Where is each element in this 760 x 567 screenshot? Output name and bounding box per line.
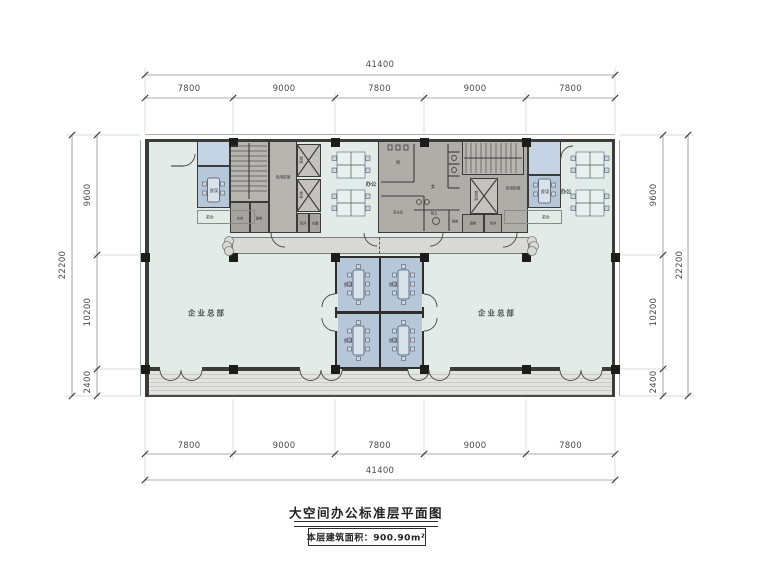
dim-right-total: 22200 [675, 251, 685, 280]
room-label-wc-men: 男 [396, 159, 400, 165]
dim-left-seg: 10200 [83, 298, 93, 327]
dim-top-seg: 7800 [559, 84, 582, 94]
dim-top-seg: 7800 [178, 84, 201, 94]
dim-bottom-seg: 7800 [178, 441, 201, 451]
room-label-elevator: 客梯 [298, 191, 303, 198]
dim-right-seg: 9600 [649, 184, 659, 207]
room-label-elevator: 客梯 [298, 156, 303, 163]
room-label-wc-accessible: 残卫 [431, 211, 438, 216]
zone-label-office-right: 办公 [561, 187, 572, 195]
dim-top-total: 41400 [366, 60, 395, 70]
stair-treads-right [464, 143, 522, 173]
room-label-lobby: 合用前室 [506, 185, 521, 191]
elevator-x-icon [298, 145, 497, 213]
dim-top-seg: 9000 [273, 84, 296, 94]
title-underline-double [294, 521, 438, 527]
floor-plan-sheet: 41400 7800 9000 7800 9000 7800 7800 9000… [0, 0, 760, 567]
room-label-reception: 前台 [206, 214, 213, 220]
dim-right-seg: 2400 [649, 371, 659, 394]
room-label-power: 强电 [452, 219, 459, 224]
toilet-partitions [381, 144, 460, 231]
zone-label-office-left: 办公 [366, 180, 377, 188]
room-label-power: 强电 [256, 216, 263, 221]
room-label-meeting: 会议 [209, 187, 218, 193]
room-label-meeting: 会议 [389, 281, 398, 287]
room-label-meeting: 会议 [540, 188, 549, 194]
dim-bottom-seg: 7800 [368, 441, 391, 451]
dimension-lines [72, 75, 688, 480]
room-label-lobby: 合用前室 [275, 174, 290, 180]
room-label-air-shaft: 风井 [490, 221, 497, 226]
dim-right-seg: 10200 [649, 298, 659, 327]
conference-table-icons [203, 178, 556, 361]
room-label-low-voltage: 弱电 [470, 221, 477, 226]
room-label-fire-elevator: 消防梯 [473, 191, 478, 202]
drawing-title: 大空间办公标准层平面图 [289, 503, 443, 522]
room-label-meeting: 会议 [344, 337, 353, 343]
dim-left-seg: 9600 [83, 184, 93, 207]
dimension-ticks [69, 72, 691, 483]
room-label-pantry: 茶水间 [393, 210, 403, 215]
room-label-wc-women: 女 [431, 183, 435, 189]
room-label-meeting: 会议 [389, 337, 398, 343]
dim-top-seg: 9000 [464, 84, 487, 94]
balcony-door-icons [160, 370, 602, 381]
canopy-scallops [223, 237, 539, 256]
stair-treads-left [231, 143, 267, 199]
room-label-water-shaft: 水井 [236, 216, 243, 221]
zone-label-hq-right: 企业总部 [478, 308, 516, 319]
dim-bottom-total: 41400 [366, 466, 395, 476]
dim-top-seg: 7800 [368, 84, 391, 94]
zone-label-hq-left: 企业总部 [188, 308, 226, 319]
dim-left-total: 22200 [58, 251, 68, 280]
dim-bottom-seg: 9000 [273, 441, 296, 451]
dim-left-seg: 2400 [83, 371, 93, 394]
room-label-plumbing: 水暖 [311, 221, 318, 226]
dim-bottom-seg: 7800 [559, 441, 582, 451]
room-label-air-shaft: 风井 [299, 221, 306, 226]
room-label-reception: 前台 [542, 214, 549, 220]
dim-bottom-seg: 9000 [464, 441, 487, 451]
room-label-meeting: 会议 [344, 281, 353, 287]
extension-lines [66, 68, 694, 486]
area-text: 本层建筑面积：900.90m² [307, 530, 426, 543]
